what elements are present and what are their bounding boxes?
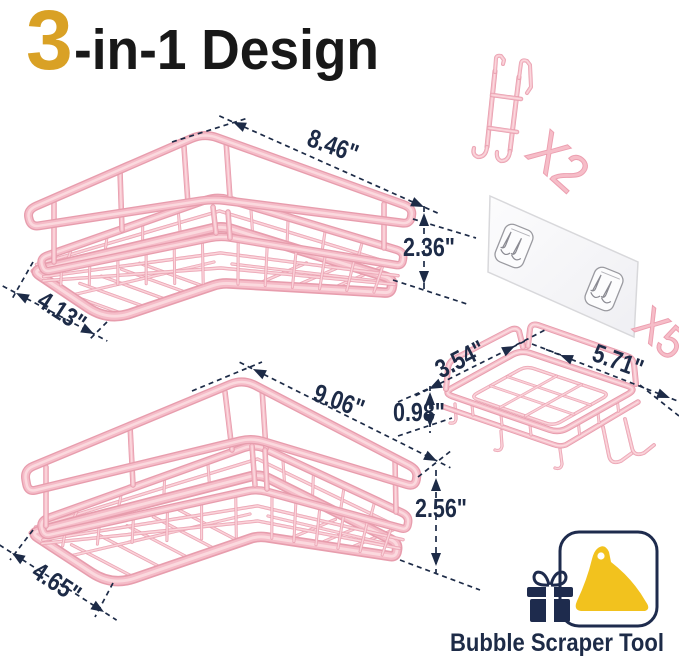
svg-text:0.98": 0.98"	[393, 397, 445, 427]
svg-text:2.56": 2.56"	[415, 493, 467, 523]
svg-text:2.36": 2.36"	[403, 232, 455, 262]
svg-text:3: 3	[26, 0, 73, 87]
svg-text:-in-1 Design: -in-1 Design	[74, 18, 379, 82]
svg-text:Bubble Scraper Tool: Bubble Scraper Tool	[450, 629, 664, 657]
